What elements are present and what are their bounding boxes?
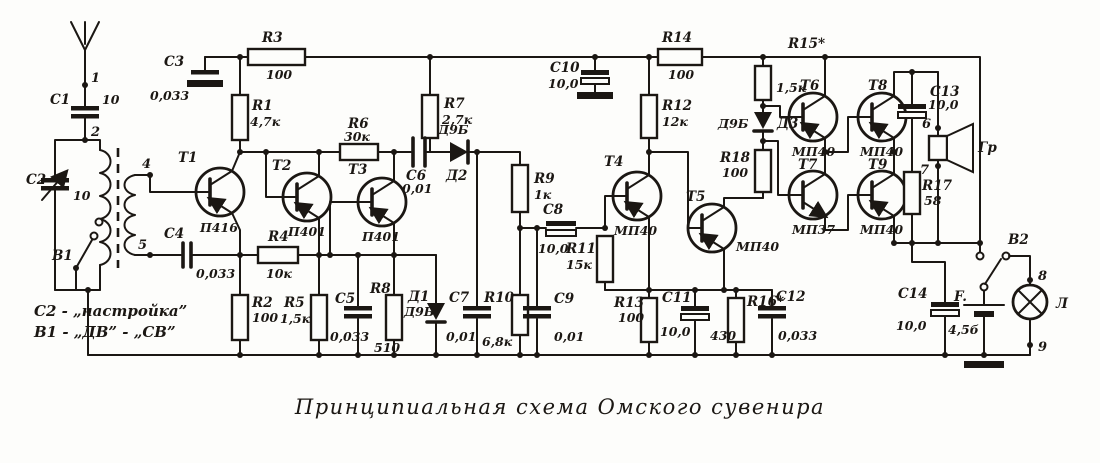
node-1-label: 1 bbox=[91, 71, 100, 86]
t1-type: П416 bbox=[199, 220, 238, 235]
d2-label: Д2 bbox=[445, 168, 467, 184]
r18-label: R18 bbox=[719, 150, 751, 166]
c5-value: 0,033 bbox=[330, 329, 369, 344]
schematic-caption: Принципиальная схема Омского сувенира bbox=[294, 395, 825, 419]
r3-label: R3 bbox=[261, 30, 283, 46]
band-switch-b1 bbox=[73, 219, 103, 291]
c4-label: C4 bbox=[164, 226, 184, 242]
antenna-icon bbox=[71, 22, 99, 108]
c3-value: 0,033 bbox=[150, 88, 189, 103]
resistor-r6 bbox=[340, 144, 378, 160]
resistor-r11 bbox=[597, 236, 613, 290]
node-9-label: 9 bbox=[1038, 340, 1047, 355]
node-6-label: 6 bbox=[922, 117, 931, 132]
t4-label: T4 bbox=[604, 154, 623, 170]
r15-label: R15* bbox=[787, 36, 825, 52]
c10-label: C10 bbox=[550, 60, 580, 76]
r3-value: 100 bbox=[266, 67, 292, 82]
c7-value: 0,01 bbox=[446, 329, 476, 344]
power-switch-b2 bbox=[977, 243, 1031, 291]
c5-label: C5 bbox=[335, 291, 355, 307]
c14-label: C14 bbox=[898, 286, 928, 302]
resistor-r3 bbox=[248, 49, 305, 65]
node-4-label: 4 bbox=[142, 157, 151, 172]
battery-value: 4,5б bbox=[948, 322, 979, 337]
t7-label: T7 bbox=[798, 157, 818, 173]
r13-value: 100 bbox=[618, 310, 644, 325]
r12-label: R12 bbox=[661, 98, 692, 114]
resistor-r18 bbox=[755, 150, 771, 198]
t6-label: T6 bbox=[800, 78, 820, 94]
t9-label: T9 bbox=[868, 157, 888, 173]
r2-label: R2 bbox=[251, 295, 273, 311]
resistor-r10 bbox=[512, 295, 528, 355]
c11-label: C11 bbox=[662, 290, 692, 306]
resistor-r5 bbox=[311, 255, 327, 355]
t2-label: T2 bbox=[272, 158, 291, 174]
r16-value: 430 bbox=[710, 328, 736, 343]
schematic-page: 1 C1 10 2 C2 10 4 5 B1 bbox=[0, 0, 1100, 463]
r4-label: R4 bbox=[267, 229, 289, 245]
diode-d3 bbox=[754, 112, 772, 150]
t7-type: МП37 bbox=[791, 222, 835, 237]
b2-label: B2 bbox=[1007, 232, 1029, 248]
r4-value: 10к bbox=[266, 266, 292, 281]
r13-label: R13 bbox=[613, 295, 644, 311]
c13-value: 10,0 bbox=[928, 97, 959, 112]
r5-label: R5 bbox=[283, 295, 305, 311]
r10-label: R10 bbox=[483, 290, 515, 306]
d3-type: Д9Б bbox=[717, 116, 749, 131]
d1-type: Д9Б bbox=[403, 304, 435, 319]
r9-value: 1к bbox=[534, 187, 552, 202]
c10-value: 10,0 bbox=[548, 76, 579, 91]
diode-d2 bbox=[450, 141, 468, 163]
d1-label: Д1 bbox=[407, 289, 429, 305]
c9-label: C9 bbox=[554, 291, 575, 307]
c4-value: 0,033 bbox=[196, 266, 235, 281]
resistor-r17 bbox=[904, 172, 920, 243]
c6-value: 0,01 bbox=[402, 181, 432, 196]
r14-value: 100 bbox=[668, 67, 694, 82]
r12-value: 12к bbox=[662, 114, 688, 129]
note-line-1: C2 - „настройка” bbox=[34, 302, 187, 320]
c2-label: C2 bbox=[26, 172, 46, 188]
t9-type: МП40 bbox=[859, 222, 903, 237]
r11-value: 15к bbox=[566, 257, 592, 272]
r14-label: R14 bbox=[661, 30, 692, 46]
c8-label: C8 bbox=[543, 202, 564, 218]
c1-value: 10 bbox=[102, 92, 120, 107]
circuit-schematic: 1 C1 10 2 C2 10 4 5 B1 bbox=[0, 0, 1100, 463]
tank-bottom-wires bbox=[55, 287, 100, 355]
c1-label: C1 bbox=[50, 92, 70, 108]
node-2-label: 2 bbox=[90, 125, 100, 140]
resistor-r4 bbox=[258, 247, 298, 263]
r5-value: 1,5к bbox=[280, 311, 311, 326]
t3-type: П401 bbox=[361, 229, 400, 244]
capacitor-c6 bbox=[413, 138, 425, 166]
r1-label: R1 bbox=[251, 98, 273, 114]
resistor-r16 bbox=[728, 290, 744, 355]
c7-label: C7 bbox=[449, 290, 470, 306]
r1-value: 4,7к bbox=[250, 114, 281, 129]
resistor-r14 bbox=[658, 49, 702, 65]
r8-label: R8 bbox=[369, 281, 391, 297]
r10-value: 6,8к bbox=[482, 334, 513, 349]
r17-value: 58 bbox=[924, 193, 942, 208]
r2-value: 100 bbox=[252, 310, 278, 325]
t2-type: П401 bbox=[287, 224, 326, 239]
transformer-coil bbox=[85, 140, 150, 290]
resistor-r12 bbox=[641, 57, 657, 152]
transistor-t6 bbox=[789, 57, 858, 152]
t8-label: T8 bbox=[868, 78, 888, 94]
c8-value: 10,0 bbox=[538, 241, 569, 256]
d2-type: Д9Б bbox=[437, 122, 469, 137]
t5-type: МП40 bbox=[735, 239, 779, 254]
node-7-label: 7 bbox=[920, 163, 929, 178]
c11-value: 10,0 bbox=[660, 324, 691, 339]
c12-value: 0,033 bbox=[778, 328, 817, 343]
r17-label: R17 bbox=[921, 178, 953, 194]
d3-label: Д3 bbox=[776, 116, 798, 132]
c3-label: C3 bbox=[164, 54, 184, 70]
c2-value: 10 bbox=[73, 188, 91, 203]
note-line-2: B1 - „ДВ” - „СВ” bbox=[33, 323, 176, 341]
t1-label: T1 bbox=[178, 150, 197, 166]
c14-value: 10,0 bbox=[896, 318, 927, 333]
capacitor-c10 bbox=[577, 57, 613, 99]
resistor-r1 bbox=[232, 57, 248, 152]
r9-label: R9 bbox=[533, 171, 555, 187]
r6-value: 30к bbox=[344, 129, 370, 144]
r7-label: R7 bbox=[443, 96, 465, 112]
node-5-label: 5 bbox=[138, 238, 147, 253]
capacitor-c4 bbox=[183, 243, 191, 267]
c9-value: 0,01 bbox=[554, 329, 584, 344]
b1-label: B1 bbox=[51, 248, 73, 264]
t3-label: T3 bbox=[348, 162, 367, 178]
node-8-label: 8 bbox=[1038, 269, 1047, 284]
t4-type: МП40 bbox=[613, 223, 657, 238]
ground-icon bbox=[964, 361, 1004, 368]
t5-label: T5 bbox=[686, 189, 705, 205]
capacitor-c3 bbox=[187, 57, 223, 87]
speaker-label: Гр bbox=[977, 140, 997, 156]
capacitor-c8 bbox=[520, 221, 605, 236]
lamp-label: Л bbox=[1055, 296, 1069, 312]
r18-value: 100 bbox=[722, 165, 748, 180]
r8-value: 510 bbox=[374, 340, 400, 355]
r11-label: R11 bbox=[565, 241, 596, 257]
c12-label: C12 bbox=[776, 289, 806, 305]
